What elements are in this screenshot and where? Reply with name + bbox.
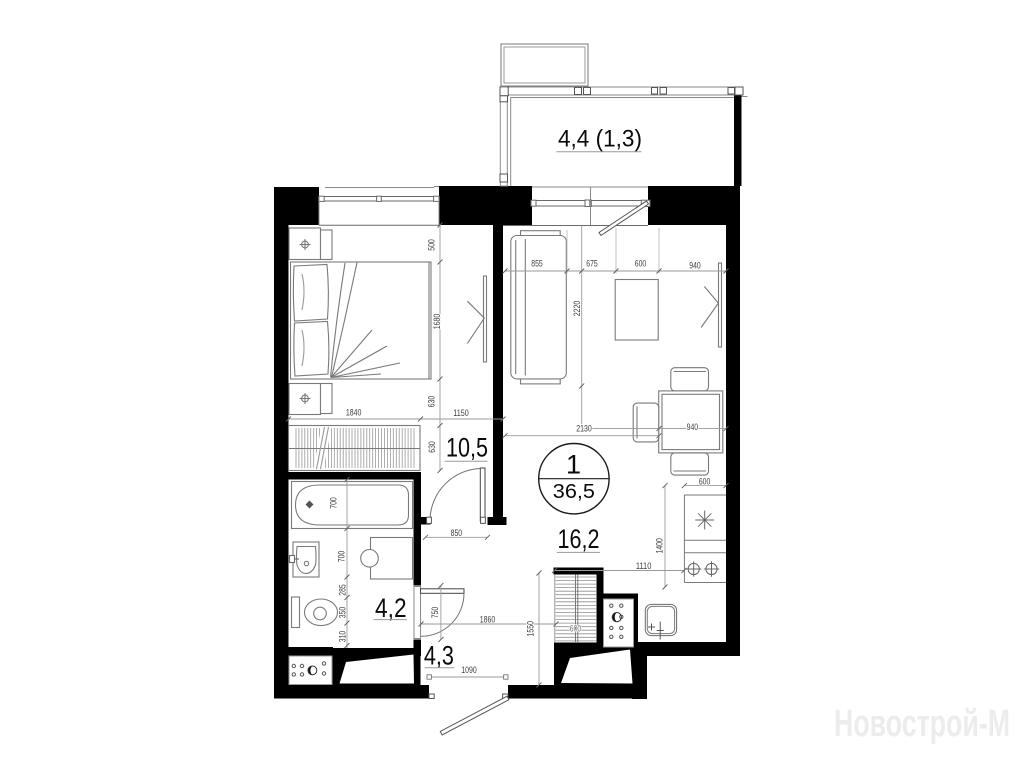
svg-text:310: 310 [337, 631, 347, 643]
svg-text:285: 285 [337, 584, 347, 596]
svg-text:940: 940 [687, 422, 699, 432]
svg-text:1680: 1680 [432, 314, 442, 330]
svg-text:630: 630 [426, 396, 436, 408]
svg-text:1400: 1400 [655, 538, 665, 554]
svg-text:1860: 1860 [480, 615, 496, 625]
svg-text:855: 855 [531, 259, 543, 269]
svg-text:600: 600 [699, 477, 711, 487]
svg-text:10,5: 10,5 [446, 432, 488, 462]
svg-text:700: 700 [328, 497, 338, 509]
svg-text:36,5: 36,5 [553, 481, 595, 503]
svg-text:1150: 1150 [453, 408, 469, 418]
svg-text:850: 850 [451, 528, 463, 538]
svg-text:600: 600 [570, 624, 582, 634]
svg-text:1550: 1550 [526, 621, 536, 637]
svg-text:350: 350 [337, 607, 347, 619]
svg-text:600: 600 [635, 259, 647, 269]
svg-text:675: 675 [586, 259, 598, 269]
svg-text:4,2: 4,2 [375, 593, 407, 623]
svg-text:940: 940 [689, 261, 701, 271]
svg-text:630: 630 [427, 441, 437, 453]
svg-text:1110: 1110 [636, 561, 652, 571]
svg-text:2220: 2220 [572, 301, 582, 317]
svg-text:1: 1 [566, 450, 581, 480]
svg-text:1840: 1840 [346, 408, 362, 418]
svg-text:2130: 2130 [576, 424, 592, 434]
svg-text:4,3: 4,3 [424, 641, 454, 671]
svg-text:4,4 (1,3): 4,4 (1,3) [558, 125, 642, 152]
svg-text:700: 700 [336, 551, 346, 563]
svg-text:500: 500 [426, 239, 436, 251]
svg-text:Новострой-М: Новострой-М [834, 703, 1010, 745]
svg-text:1090: 1090 [461, 665, 477, 675]
svg-text:750: 750 [430, 607, 440, 619]
svg-text:16,2: 16,2 [558, 524, 600, 554]
